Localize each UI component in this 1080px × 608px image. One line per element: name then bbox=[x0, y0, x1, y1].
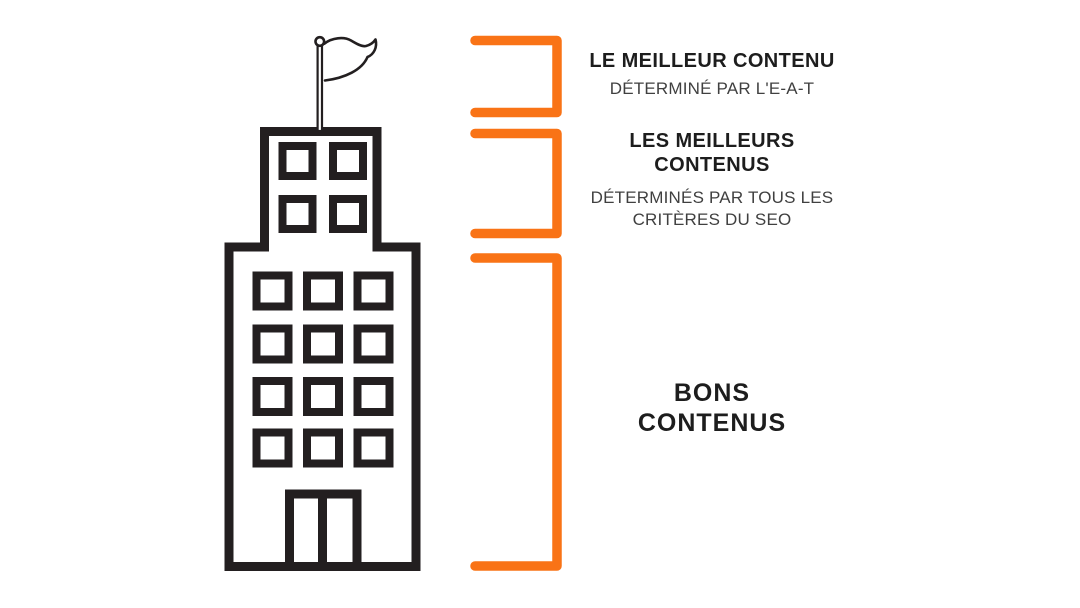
window-icon bbox=[358, 381, 390, 412]
flagpole bbox=[318, 45, 322, 131]
section-label-top: LE MEILLEUR CONTENU DÉTERMINÉ PAR L'E-A-… bbox=[562, 49, 862, 100]
window-icon bbox=[358, 276, 390, 307]
title-line: LES MEILLEURS bbox=[562, 129, 862, 153]
building-icon bbox=[229, 132, 416, 567]
section-subtitle: DÉTERMINÉS PAR TOUS LES CRITÈRES DU SEO bbox=[562, 187, 862, 231]
section-subtitle: DÉTERMINÉ PAR L'E-A-T bbox=[562, 78, 862, 100]
title-line: BONS bbox=[562, 378, 862, 408]
door-icon bbox=[290, 494, 358, 567]
main-windows bbox=[257, 276, 390, 464]
window-icon bbox=[257, 276, 289, 307]
window-icon bbox=[257, 381, 289, 412]
window-icon bbox=[307, 381, 339, 412]
window-icon bbox=[283, 146, 313, 176]
title-line: LE MEILLEUR CONTENU bbox=[562, 49, 862, 73]
section-title: BONS CONTENUS bbox=[562, 378, 862, 438]
flag-icon bbox=[316, 37, 377, 131]
window-icon bbox=[257, 433, 289, 464]
tier-brackets bbox=[475, 41, 557, 567]
section-title: LES MEILLEURS CONTENUS bbox=[562, 129, 862, 177]
subtitle-line: DÉTERMINÉ PAR L'E-A-T bbox=[562, 78, 862, 100]
flag-pennant bbox=[324, 38, 376, 80]
title-line: CONTENUS bbox=[562, 153, 862, 177]
window-icon bbox=[333, 199, 363, 229]
tower-windows bbox=[283, 146, 364, 229]
window-icon bbox=[358, 433, 390, 464]
window-icon bbox=[358, 329, 390, 360]
window-icon bbox=[307, 433, 339, 464]
title-line: CONTENUS bbox=[562, 408, 862, 438]
flagpole-ball bbox=[316, 37, 325, 46]
window-icon bbox=[333, 146, 363, 176]
window-icon bbox=[283, 199, 313, 229]
top-bracket-icon bbox=[475, 41, 557, 113]
subtitle-line: CRITÈRES DU SEO bbox=[562, 209, 862, 231]
section-label-bottom: BONS CONTENUS bbox=[562, 378, 862, 438]
infographic-canvas: LE MEILLEUR CONTENU DÉTERMINÉ PAR L'E-A-… bbox=[0, 0, 1080, 608]
window-icon bbox=[257, 329, 289, 360]
illustration-layer bbox=[0, 0, 1080, 608]
window-icon bbox=[307, 276, 339, 307]
subtitle-line: DÉTERMINÉS PAR TOUS LES bbox=[562, 187, 862, 209]
section-title: LE MEILLEUR CONTENU bbox=[562, 49, 862, 73]
middle-bracket-icon bbox=[475, 134, 557, 234]
window-icon bbox=[307, 329, 339, 360]
section-label-middle: LES MEILLEURS CONTENUS DÉTERMINÉS PAR TO… bbox=[562, 129, 862, 231]
bottom-bracket-icon bbox=[475, 258, 557, 566]
